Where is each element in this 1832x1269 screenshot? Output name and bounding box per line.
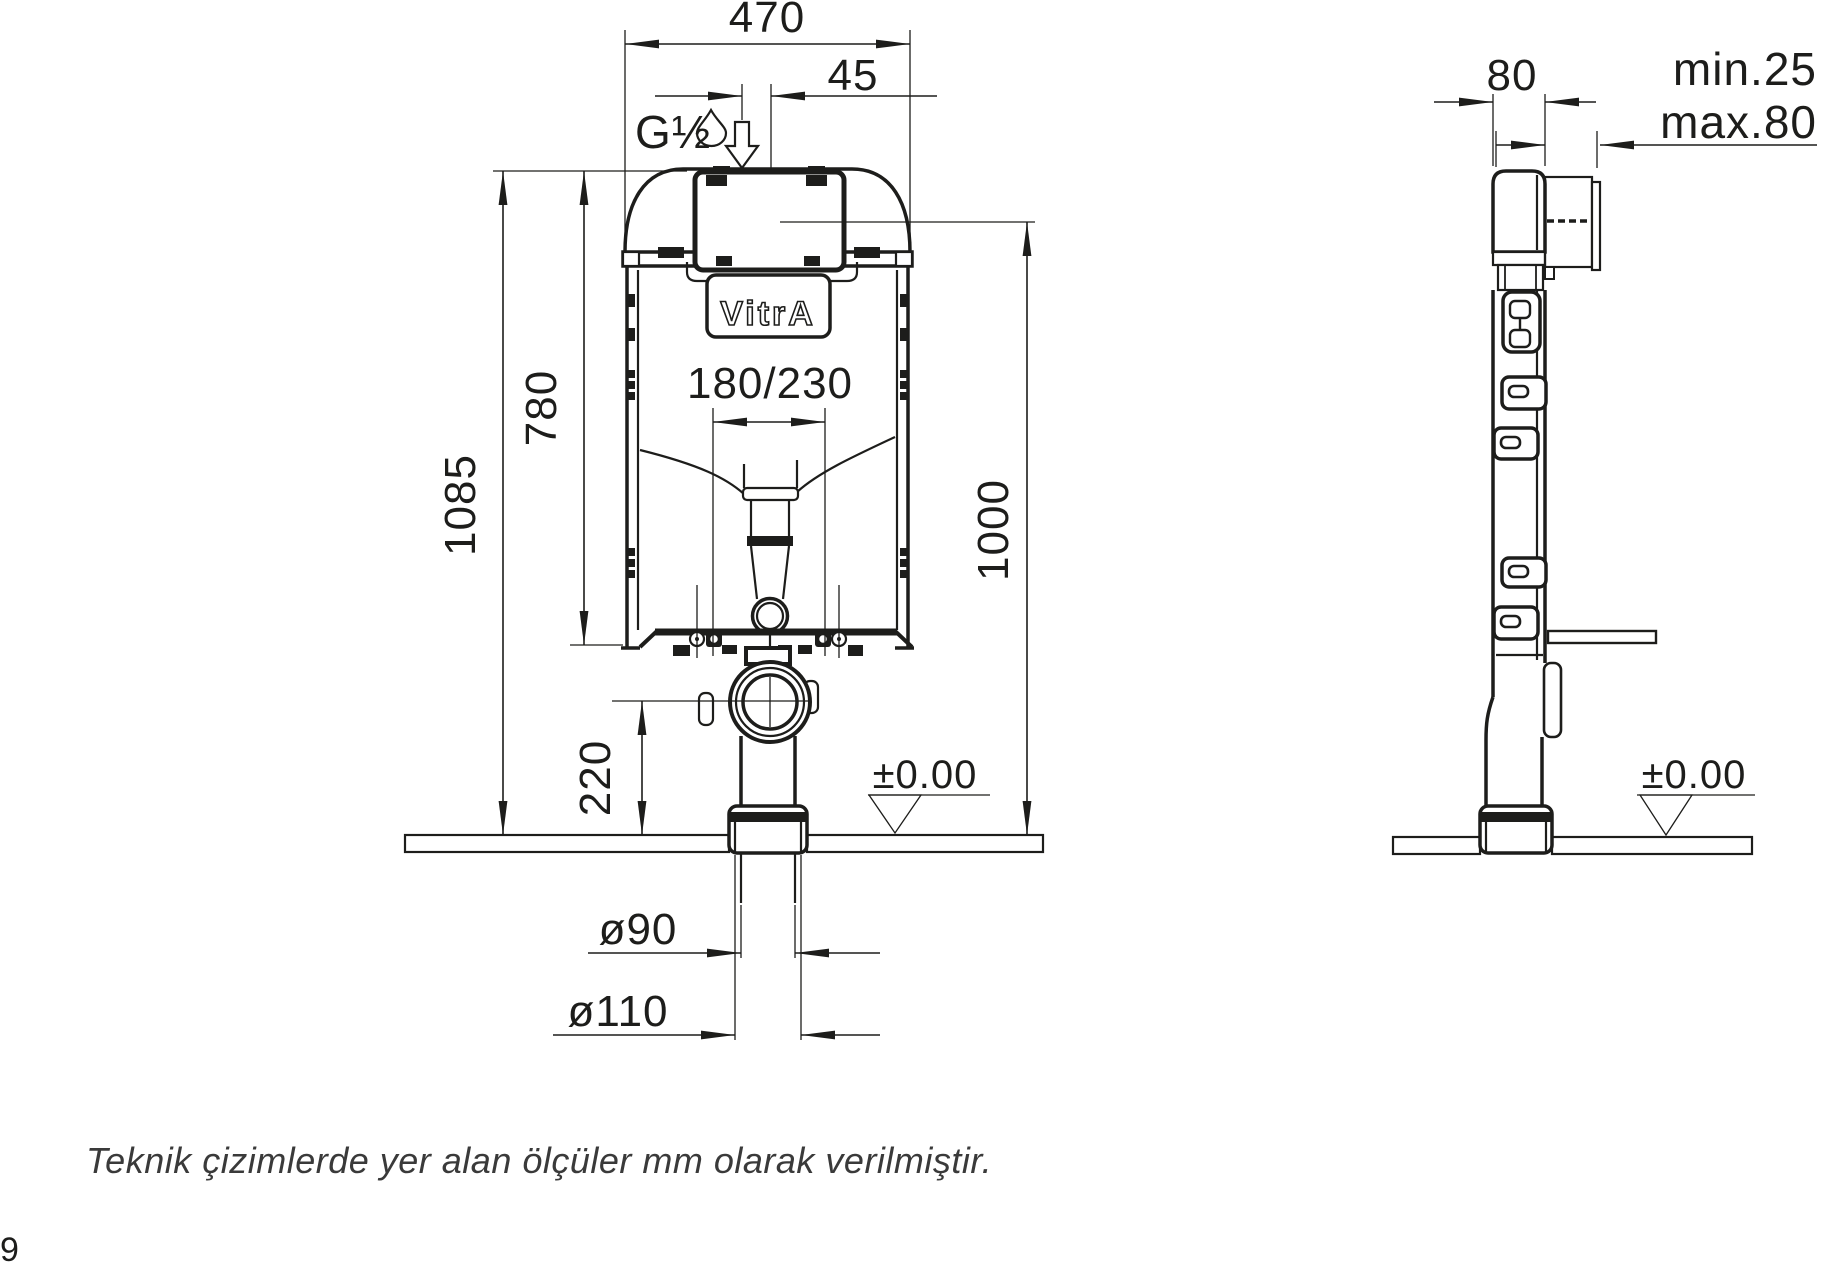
front-view: VitrA	[405, 0, 1043, 1040]
bracket-slot-3	[1502, 558, 1546, 587]
bracket-slot-4	[1494, 607, 1538, 639]
side-view: 80 min.25 max.80 ±0.00	[1393, 43, 1817, 854]
footnote-text: Teknik çizimlerde yer alan ölçüler mm ol…	[86, 1140, 992, 1182]
dim-label-180-230: 180/230	[687, 359, 853, 408]
logo-panel: VitrA	[707, 275, 830, 337]
vitra-logo: VitrA	[720, 295, 816, 333]
flush-valve-funnel	[640, 437, 895, 648]
flange-notch-left	[623, 252, 639, 266]
dim-label-780: 780	[517, 370, 566, 446]
wall-brackets	[1494, 292, 1546, 639]
page-number-fragment: 9	[0, 1233, 19, 1267]
floor-front	[405, 835, 1043, 852]
flange-clip-left	[658, 247, 684, 258]
floor-side	[1393, 837, 1752, 854]
flange-notch-right	[896, 252, 912, 266]
dim-label-max80: max.80	[1660, 96, 1817, 148]
adjustment-sleeve	[1545, 177, 1600, 279]
bracket-slot-1	[1502, 377, 1546, 409]
inlet-arrow-icon	[726, 122, 758, 168]
dim-label-d90: ø90	[599, 905, 678, 954]
level-label-side: ±0.00	[1642, 753, 1747, 797]
fixing-rod	[1548, 631, 1656, 643]
technical-drawing-canvas: VitrA	[0, 0, 1832, 1249]
drain-pipe-front	[729, 806, 807, 903]
bracket-slot-2	[1494, 428, 1538, 459]
dim-label-470: 470	[729, 0, 805, 42]
flush-flap	[1544, 663, 1561, 737]
dim-label-min25: min.25	[1673, 43, 1817, 95]
outlet-elbow-front	[699, 662, 818, 808]
dim-label-220: 220	[571, 740, 620, 816]
dim-label-45: 45	[828, 51, 879, 100]
inlet-thread-label: G½	[635, 106, 711, 158]
bracket-hook	[1503, 292, 1540, 352]
level-label-front: ±0.00	[873, 753, 978, 797]
extension-lines-side	[1493, 94, 1597, 168]
dim-label-80: 80	[1487, 51, 1538, 100]
dim-label-1000: 1000	[969, 479, 1018, 581]
level-mark-side	[1637, 795, 1755, 835]
level-mark-front	[868, 795, 990, 833]
dim-label-d110: ø110	[567, 987, 668, 1036]
bottom-frame	[621, 631, 914, 664]
inspection-box	[687, 166, 857, 281]
dim-label-1085: 1085	[436, 454, 485, 556]
flange-clip-right	[854, 247, 880, 258]
